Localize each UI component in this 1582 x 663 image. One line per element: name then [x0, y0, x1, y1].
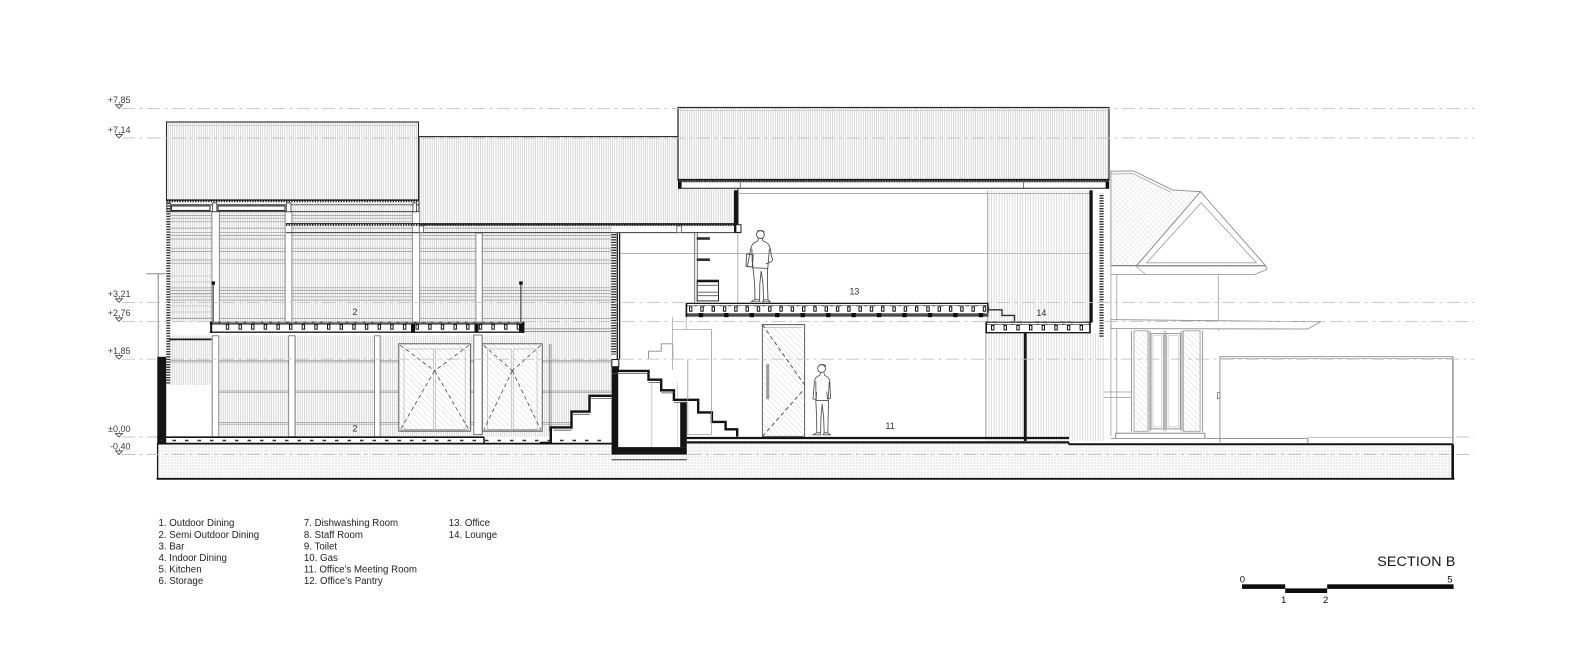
svg-text:10. Gas: 10. Gas: [304, 553, 338, 564]
svg-text:1: 1: [1281, 595, 1286, 606]
svg-text:7. Dishwashing Room: 7. Dishwashing Room: [304, 518, 398, 529]
svg-text:+7,85: +7,85: [108, 95, 131, 105]
svg-text:2: 2: [353, 424, 358, 434]
svg-text:+2,76: +2,76: [108, 308, 131, 318]
svg-text:9. Toilet: 9. Toilet: [304, 541, 338, 552]
svg-text:14. Lounge: 14. Lounge: [449, 530, 498, 541]
svg-text:14: 14: [1037, 308, 1047, 318]
svg-text:13. Office: 13. Office: [449, 518, 490, 529]
svg-text:2: 2: [1323, 595, 1328, 606]
svg-text:4. Indoor Dining: 4. Indoor Dining: [159, 553, 227, 564]
svg-text:-0,40: -0,40: [110, 441, 131, 451]
svg-text:12. Office’s Pantry: 12. Office’s Pantry: [304, 576, 383, 587]
svg-text:+1,85: +1,85: [108, 346, 131, 356]
svg-text:1. Outdoor Dining: 1. Outdoor Dining: [159, 518, 235, 529]
svg-text:3. Bar: 3. Bar: [159, 541, 186, 552]
svg-text:6. Storage: 6. Storage: [159, 576, 204, 587]
svg-text:5: 5: [1447, 574, 1452, 585]
svg-text:5. Kitchen: 5. Kitchen: [159, 565, 202, 576]
svg-text:11. Office’s Meeting Room: 11. Office’s Meeting Room: [304, 565, 417, 576]
svg-text:13: 13: [850, 287, 860, 297]
svg-text:2. Semi Outdoor Dining: 2. Semi Outdoor Dining: [159, 530, 260, 541]
svg-text:8. Staff Room: 8. Staff Room: [304, 530, 363, 541]
svg-text:±0,00: ±0,00: [108, 424, 130, 434]
svg-text:11: 11: [886, 421, 895, 431]
svg-text:SECTION B: SECTION B: [1377, 554, 1455, 570]
svg-text:+3,21: +3,21: [108, 289, 131, 299]
svg-text:2: 2: [353, 307, 358, 317]
svg-text:+7,14: +7,14: [108, 125, 131, 135]
svg-text:0: 0: [1240, 574, 1245, 585]
